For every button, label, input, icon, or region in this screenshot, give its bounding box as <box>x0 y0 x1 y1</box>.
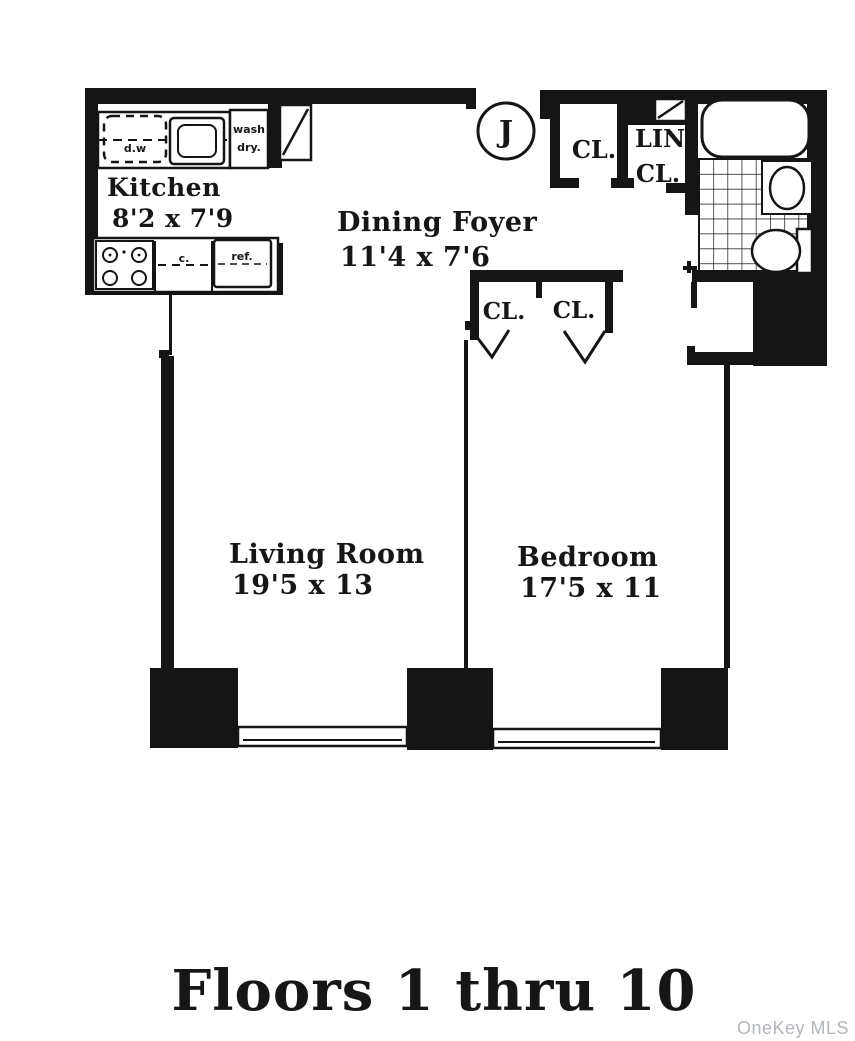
closet-door-chevrons <box>470 328 605 362</box>
watermark: OneKey MLS <box>737 1018 849 1038</box>
kitchen-name: Kitchen <box>107 173 221 202</box>
stove <box>96 241 153 289</box>
refrigerator-label: ref. <box>231 250 252 263</box>
washer-label: wash <box>233 123 265 136</box>
toilet <box>752 229 812 273</box>
kitchen-dims: 8'2 x 7'9 <box>112 204 234 233</box>
living-room-window <box>238 727 407 746</box>
floors-caption: Floors 1 thru 10 <box>172 958 697 1024</box>
hall-closet-label: CL. <box>572 135 616 164</box>
bathroom-sink <box>762 161 812 214</box>
bedroom-closet-left-label: CL. <box>483 298 526 325</box>
bedroom-closet-right-label: CL. <box>553 297 596 324</box>
bedroom-window <box>493 729 661 748</box>
room-labels: Kitchen 8'2 x 7'9 Dining Foyer 11'4 x 7'… <box>107 124 685 604</box>
dining-foyer-name: Dining Foyer <box>337 207 538 238</box>
bedroom-dims: 17'5 x 11 <box>520 573 662 604</box>
counter-label: c. <box>179 252 190 265</box>
living-room-name: Living Room <box>229 539 425 570</box>
bathroom <box>699 100 813 278</box>
linen-closet-label-1: LIN <box>635 124 685 153</box>
dining-foyer-dims: 11'4 x 7'6 <box>340 242 490 273</box>
kitchen-door <box>280 105 311 160</box>
bedroom-name: Bedroom <box>517 542 658 573</box>
linen-closet-label-2: CL. <box>636 159 680 188</box>
dishwasher-label: d.w <box>124 142 146 155</box>
unit-letter: J <box>496 115 513 150</box>
washer-dryer <box>230 110 268 168</box>
floor-plan-svg: d.w wash dry. c. <box>0 0 855 1041</box>
bathtub <box>702 100 809 157</box>
unit-marker: J <box>478 103 534 159</box>
dryer-label: dry. <box>237 141 261 154</box>
floor-plan-page: d.w wash dry. c. <box>0 0 855 1041</box>
refrigerator: ref. <box>214 240 271 287</box>
living-room-dims: 19'5 x 13 <box>232 570 374 601</box>
